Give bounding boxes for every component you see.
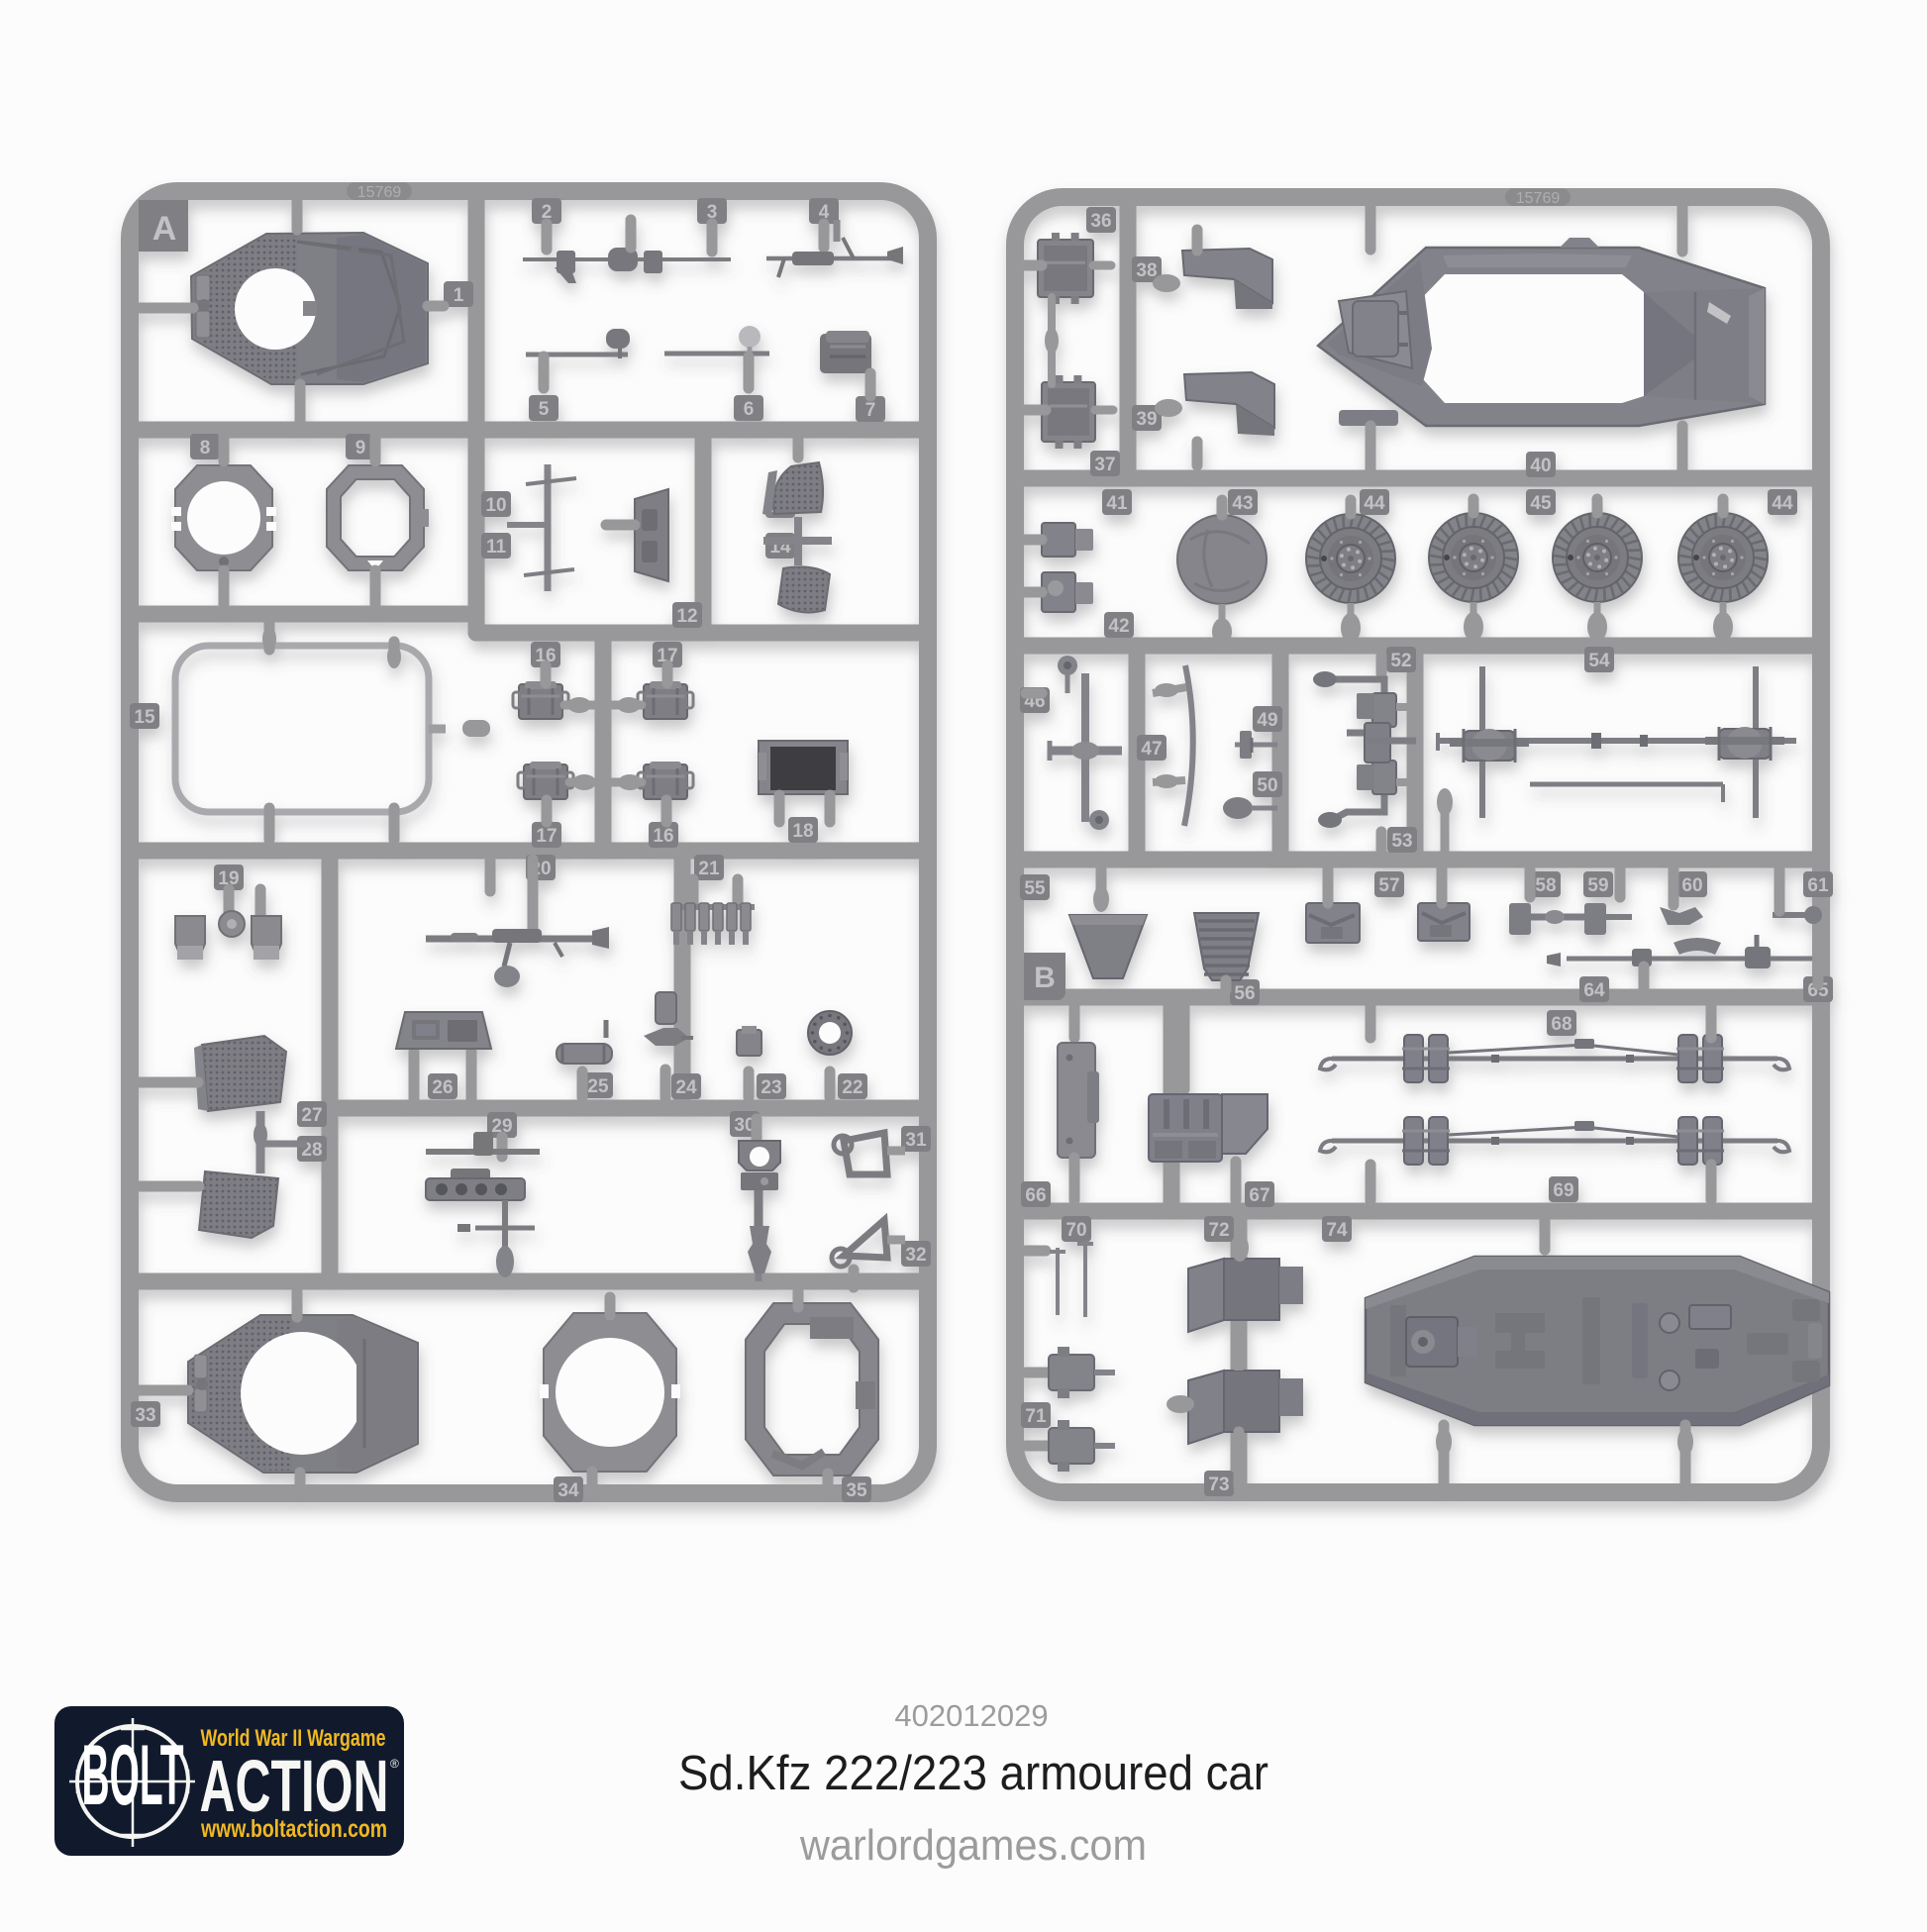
svg-text:23: 23	[761, 1077, 781, 1098]
svg-text:B: B	[1034, 962, 1056, 994]
svg-text:17: 17	[536, 826, 557, 847]
svg-text:18: 18	[792, 821, 813, 842]
svg-text:47: 47	[1141, 739, 1162, 760]
svg-text:49: 49	[1257, 710, 1277, 731]
svg-text:26: 26	[432, 1077, 453, 1098]
svg-text:38: 38	[1136, 260, 1157, 281]
svg-text:Sd.Kfz 222/223 armoured car: Sd.Kfz 222/223 armoured car	[678, 1747, 1268, 1800]
svg-text:55: 55	[1024, 878, 1046, 899]
svg-text:73: 73	[1208, 1474, 1229, 1495]
svg-text:68: 68	[1551, 1014, 1572, 1035]
svg-text:8: 8	[200, 438, 211, 458]
svg-text:16: 16	[653, 826, 673, 847]
svg-text:52: 52	[1390, 651, 1411, 671]
svg-text:39: 39	[1136, 409, 1157, 430]
svg-text:22: 22	[842, 1077, 862, 1098]
svg-text:59: 59	[1587, 875, 1608, 896]
svg-text:37: 37	[1094, 455, 1115, 475]
svg-text:A: A	[152, 210, 177, 248]
svg-text:58: 58	[1535, 875, 1556, 896]
svg-text:402012029: 402012029	[894, 1698, 1048, 1733]
svg-text:60: 60	[1681, 875, 1702, 896]
svg-text:74: 74	[1326, 1220, 1348, 1241]
svg-text:40: 40	[1530, 456, 1551, 476]
svg-text:27: 27	[301, 1105, 322, 1126]
svg-text:15769: 15769	[357, 184, 402, 201]
svg-text:15769: 15769	[1516, 190, 1561, 207]
svg-text:6: 6	[744, 399, 755, 420]
svg-text:warlordgames.com: warlordgames.com	[799, 1821, 1147, 1870]
svg-text:12: 12	[676, 606, 697, 627]
svg-text:44: 44	[1364, 493, 1385, 514]
svg-text:57: 57	[1378, 875, 1399, 896]
svg-text:10: 10	[485, 495, 506, 516]
svg-text:41: 41	[1106, 493, 1128, 514]
svg-text:53: 53	[1391, 831, 1412, 852]
svg-text:70: 70	[1065, 1220, 1086, 1241]
svg-text:69: 69	[1553, 1180, 1573, 1201]
svg-text:21: 21	[698, 859, 720, 879]
svg-text:50: 50	[1257, 775, 1277, 796]
svg-text:67: 67	[1249, 1185, 1269, 1206]
svg-text:7: 7	[865, 400, 876, 421]
svg-text:9: 9	[355, 438, 366, 458]
svg-text:35: 35	[846, 1480, 867, 1501]
svg-text:24: 24	[675, 1077, 697, 1098]
svg-text:1: 1	[454, 285, 464, 306]
svg-text:5: 5	[539, 399, 550, 420]
svg-text:34: 34	[558, 1480, 579, 1501]
svg-text:71: 71	[1025, 1406, 1047, 1427]
svg-text:®: ®	[390, 1757, 399, 1771]
svg-text:54: 54	[1588, 651, 1610, 671]
svg-text:42: 42	[1108, 616, 1129, 637]
svg-text:33: 33	[135, 1405, 155, 1426]
svg-text:66: 66	[1025, 1185, 1046, 1206]
svg-text:15: 15	[134, 707, 155, 728]
svg-text:www.boltaction.com: www.boltaction.com	[200, 1815, 387, 1843]
svg-text:31: 31	[905, 1130, 927, 1151]
svg-text:BOLT: BOLT	[82, 1728, 184, 1824]
svg-text:36: 36	[1090, 211, 1111, 232]
svg-text:11: 11	[486, 537, 507, 558]
svg-text:44: 44	[1772, 493, 1793, 514]
svg-text:64: 64	[1583, 980, 1605, 1001]
svg-text:56: 56	[1234, 983, 1255, 1004]
svg-text:72: 72	[1208, 1220, 1229, 1241]
svg-text:32: 32	[905, 1245, 926, 1266]
svg-text:25: 25	[587, 1076, 609, 1097]
svg-text:45: 45	[1530, 493, 1552, 514]
svg-text:61: 61	[1807, 875, 1829, 896]
svg-text:43: 43	[1232, 493, 1253, 514]
